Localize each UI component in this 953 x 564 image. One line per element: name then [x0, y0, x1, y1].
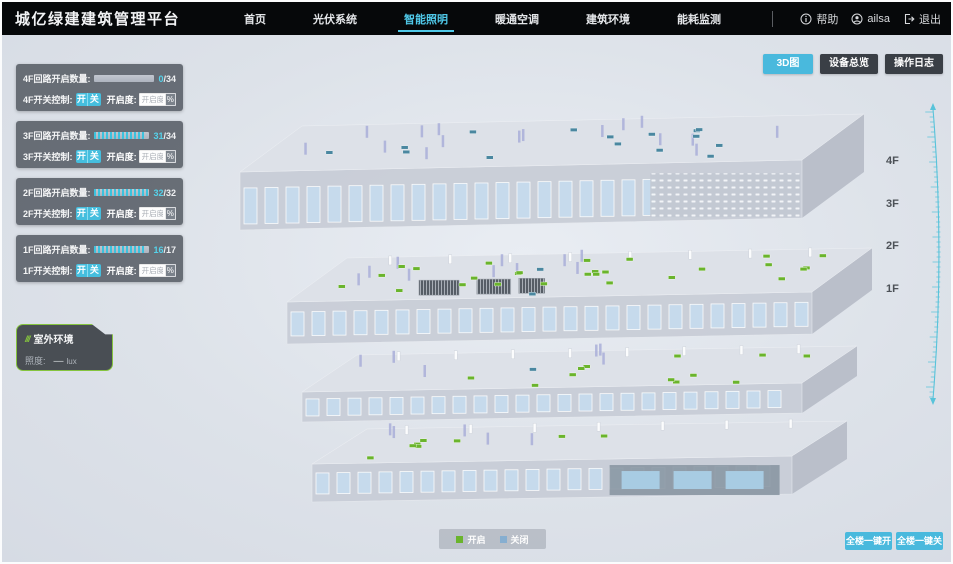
switch-on-button-4f[interactable]: 开	[76, 93, 89, 106]
light-indicator[interactable]	[614, 142, 621, 146]
light-indicator[interactable]	[674, 354, 681, 358]
floor-label-3f[interactable]: 3F	[886, 198, 899, 210]
light-indicator[interactable]	[413, 267, 420, 271]
light-indicator[interactable]	[690, 373, 697, 377]
circuit-count-value: 32/32	[153, 188, 176, 198]
nav-item-home[interactable]: 首页	[242, 2, 268, 36]
light-indicator[interactable]	[593, 273, 600, 277]
light-indicator[interactable]	[578, 367, 585, 371]
panel-2f: 2F回路开启数量: 32/32 2F开关控制: 开 关 开启度: %	[16, 178, 183, 225]
nav-item-smart-lighting[interactable]: 智能照明	[402, 2, 450, 36]
switch-on-button-2f[interactable]: 开	[76, 207, 89, 220]
main-nav: 首页 光伏系统 智能照明 暖通空调 建筑环境 能耗监测	[242, 2, 766, 36]
light-indicator[interactable]	[367, 456, 374, 460]
legend-on-swatch	[456, 536, 463, 543]
light-indicator[interactable]	[707, 154, 714, 158]
logout-icon	[903, 13, 915, 25]
switch-control-label: 1F开关控制:	[23, 264, 73, 277]
circuit-count-label: 2F回路开启数量:	[23, 186, 91, 199]
light-indicator[interactable]	[763, 254, 770, 258]
percent-button-2f[interactable]: %	[166, 207, 176, 220]
switch-control-label: 2F开关控制:	[23, 207, 73, 220]
circuit-count-label: 4F回路开启数量:	[23, 72, 91, 85]
logout-label: 退出	[919, 11, 941, 27]
light-indicator[interactable]	[403, 150, 410, 154]
switch-off-button-2f[interactable]: 关	[88, 207, 100, 220]
light-indicator[interactable]	[584, 259, 591, 263]
light-indicator[interactable]	[378, 274, 385, 278]
light-indicator[interactable]	[733, 380, 740, 384]
light-indicator[interactable]	[699, 267, 706, 271]
light-indicator[interactable]	[396, 289, 403, 293]
light-indicator[interactable]	[602, 270, 609, 274]
view-button-operation-log[interactable]: 操作日志	[885, 54, 943, 74]
outdoor-env-panel: /// 室外环境 照度: — lux	[16, 324, 113, 371]
percent-button-1f[interactable]: %	[166, 264, 176, 277]
light-indicator[interactable]	[486, 156, 493, 160]
light-indicator[interactable]	[459, 283, 466, 287]
dim-input-4f[interactable]	[139, 93, 166, 106]
light-indicator[interactable]	[326, 151, 333, 155]
app-title: 城亿绿建建筑管理平台	[2, 8, 180, 29]
light-indicator[interactable]	[420, 439, 427, 443]
light-indicator[interactable]	[765, 263, 772, 267]
light-indicator[interactable]	[656, 148, 663, 152]
switch-on-button-1f[interactable]: 开	[76, 264, 89, 277]
panel-3f: 3F回路开启数量: 31/34 3F开关控制: 开 关 开启度: %	[16, 121, 183, 168]
light-indicator[interactable]	[648, 133, 655, 137]
light-indicator[interactable]	[819, 254, 826, 258]
circuit-count-value: 31/34	[153, 131, 176, 141]
light-indicator[interactable]	[471, 276, 478, 280]
floor-zoom-ruler	[925, 103, 940, 405]
light-indicator[interactable]	[668, 378, 675, 382]
nav-item-building-env[interactable]: 建筑环境	[584, 2, 632, 36]
dim-input-1f[interactable]	[139, 264, 166, 277]
light-indicator[interactable]	[606, 281, 613, 285]
user-icon	[851, 13, 863, 25]
legend-off: 关闭	[500, 533, 529, 546]
dim-label: 开启度:	[107, 264, 137, 277]
switch-off-button-4f[interactable]: 关	[88, 93, 100, 106]
illuminance-label: 照度:	[25, 354, 46, 367]
light-indicator[interactable]	[338, 285, 345, 289]
panel-4f: 4F回路开启数量: 0/34 4F开关控制: 开 关 开启度: %	[16, 64, 183, 111]
light-indicator[interactable]	[532, 384, 539, 388]
dim-input-3f[interactable]	[139, 150, 166, 163]
switch-off-button-1f[interactable]: 关	[88, 264, 100, 277]
light-indicator[interactable]	[469, 130, 476, 134]
help-button[interactable]: 帮助	[800, 11, 838, 27]
outdoor-env-title: 室外环境	[34, 331, 74, 346]
view-buttons: 3D图 设备总览 操作日志	[763, 54, 943, 74]
light-indicator[interactable]	[558, 435, 565, 439]
light-indicator[interactable]	[516, 271, 523, 275]
floor-label-4f[interactable]: 4F	[886, 155, 899, 167]
nav-item-hvac[interactable]: 暖通空调	[493, 2, 541, 36]
switch-control-label: 4F开关控制:	[23, 93, 73, 106]
light-indicator[interactable]	[494, 282, 501, 286]
illuminance-unit: lux	[67, 357, 77, 366]
switch-control-label: 3F开关控制:	[23, 150, 73, 163]
light-status-legend: 开启 关闭	[439, 529, 546, 549]
user-button[interactable]: ailsa	[851, 13, 890, 25]
user-area: 帮助 ailsa 退出	[772, 2, 941, 35]
circuit-count-label: 1F回路开启数量:	[23, 243, 91, 256]
light-indicator[interactable]	[693, 135, 700, 139]
percent-button-3f[interactable]: %	[166, 150, 176, 163]
floor-label-2f[interactable]: 2F	[886, 240, 899, 252]
legend-off-swatch	[500, 536, 507, 543]
switch-on-button-3f[interactable]: 开	[76, 150, 89, 163]
illuminance-value: —	[54, 356, 64, 367]
light-indicator[interactable]	[759, 353, 766, 357]
light-indicator[interactable]	[467, 376, 474, 380]
light-indicator[interactable]	[601, 434, 608, 438]
legend-on: 开启	[456, 533, 485, 546]
circuit-count-label: 3F回路开启数量:	[23, 129, 91, 142]
light-indicator[interactable]	[778, 277, 785, 281]
circuit-progress-bar	[94, 75, 155, 82]
header-divider	[772, 11, 773, 27]
stripes-icon: ///	[25, 334, 30, 344]
floor-label-1f[interactable]: 1F	[886, 283, 899, 295]
circuit-count-value: 0/34	[158, 74, 176, 84]
light-indicator[interactable]	[626, 258, 633, 262]
light-indicator[interactable]	[800, 267, 807, 271]
percent-button-4f[interactable]: %	[166, 93, 176, 106]
light-indicator[interactable]	[485, 261, 492, 265]
circuit-progress-bar	[94, 246, 150, 253]
all-floors-off-button[interactable]: 全楼一键关	[896, 532, 943, 550]
dim-label: 开启度:	[107, 93, 137, 106]
light-indicator[interactable]	[716, 144, 723, 148]
light-indicator[interactable]	[529, 292, 536, 296]
main-scene: 4F回路开启数量: 0/34 4F开关控制: 开 关 开启度: % 3F回路开启…	[2, 35, 951, 562]
light-indicator[interactable]	[569, 373, 576, 377]
legend-off-label: 关闭	[511, 533, 529, 546]
logout-button[interactable]: 退出	[903, 11, 941, 27]
nav-item-pv-system[interactable]: 光伏系统	[311, 2, 359, 36]
light-indicator[interactable]	[696, 128, 703, 132]
light-indicator[interactable]	[668, 276, 675, 280]
panel-1f: 1F回路开启数量: 16/17 1F开关控制: 开 关 开启度: %	[16, 235, 183, 282]
nav-item-energy-monitor[interactable]: 能耗监测	[675, 2, 723, 36]
light-indicator[interactable]	[584, 272, 591, 276]
light-indicator[interactable]	[401, 146, 408, 150]
all-floors-on-button[interactable]: 全楼一键开	[845, 532, 892, 550]
light-indicator[interactable]	[529, 368, 536, 372]
view-button-3d[interactable]: 3D图	[763, 54, 813, 74]
switch-off-button-3f[interactable]: 关	[88, 150, 100, 163]
help-icon	[800, 13, 812, 25]
light-indicator[interactable]	[803, 354, 810, 358]
dim-label: 开启度:	[107, 150, 137, 163]
dim-input-2f[interactable]	[139, 207, 166, 220]
light-indicator[interactable]	[570, 128, 577, 132]
circuit-progress-bar	[94, 132, 150, 139]
light-indicator[interactable]	[607, 135, 614, 139]
top-bar: 城亿绿建建筑管理平台 首页 光伏系统 智能照明 暖通空调 建筑环境 能耗监测 帮…	[2, 2, 951, 35]
light-indicator[interactable]	[454, 439, 461, 443]
light-indicator[interactable]	[537, 268, 544, 272]
dim-label: 开启度:	[107, 207, 137, 220]
circuit-progress-bar	[94, 189, 150, 196]
light-indicator[interactable]	[540, 282, 547, 286]
user-name: ailsa	[867, 13, 890, 25]
building-3d-view[interactable]	[2, 35, 953, 564]
circuit-count-value: 16/17	[153, 245, 176, 255]
view-button-device-overview[interactable]: 设备总览	[820, 54, 878, 74]
bulk-buttons: 全楼一键开 全楼一键关	[845, 532, 943, 550]
light-indicator[interactable]	[398, 265, 405, 269]
light-indicator[interactable]	[409, 444, 416, 448]
legend-on-label: 开启	[467, 533, 485, 546]
app-window: 城亿绿建建筑管理平台 首页 光伏系统 智能照明 暖通空调 建筑环境 能耗监测 帮…	[0, 0, 953, 564]
help-label: 帮助	[816, 11, 838, 27]
